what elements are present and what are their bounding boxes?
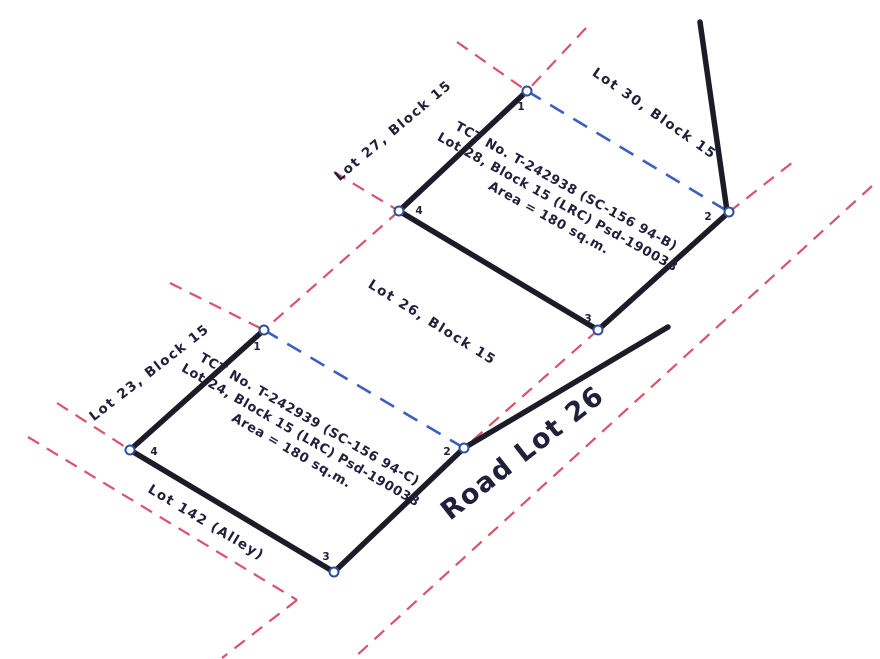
lower-corner-2-marker [460, 444, 469, 453]
lower-corner-1-number: 1 [253, 341, 260, 353]
upper-corner-1-number: 1 [517, 101, 524, 113]
boundary-right-of-road [355, 186, 872, 657]
upper-corner-3-number: 3 [584, 313, 591, 325]
upper-parcel-tct-block: TCT No. T-242938 (SC-156 94-B) Lot 28, B… [426, 114, 689, 291]
road-edge-line-top [700, 22, 727, 211]
label-lot30: Lot 30, Block 15 [589, 65, 719, 163]
upper-corner-2-marker [725, 208, 734, 217]
lower-tct-line-2: Lot 24, Block 15 (LRC) Psd-190038 [179, 361, 422, 510]
boundary-lot27-lot30-left [457, 42, 527, 91]
lower-corner-3-number: 3 [322, 551, 329, 563]
survey-diagram: Lot 27, Block 15 Lot 30, Block 15 Lot 26… [0, 0, 880, 659]
label-lot27: Lot 27, Block 15 [332, 77, 456, 184]
lower-corner-3-marker [330, 568, 339, 577]
upper-corner-1-marker [523, 87, 532, 96]
boundary-lot23-upper [170, 283, 264, 330]
labels-layer: Lot 27, Block 15 Lot 30, Block 15 Lot 26… [86, 65, 719, 564]
boundary-lot30-upper-right [527, 28, 586, 91]
boundary-alley-corner [222, 600, 297, 658]
lower-corner-1-marker [260, 326, 269, 335]
boundary-corner2-upper-ext [729, 162, 793, 212]
label-lot26: Lot 26, Block 15 [365, 277, 499, 369]
boundary-lot26-west [264, 211, 399, 330]
upper-corner-4-marker [395, 207, 404, 216]
lower-corner-4-marker [126, 446, 135, 455]
survey-plan-canvas: Lot 27, Block 15 Lot 30, Block 15 Lot 26… [0, 0, 880, 659]
upper-corner-3-marker [594, 326, 603, 335]
boundary-alley-south [28, 437, 297, 600]
lower-corner-4-number: 4 [150, 446, 157, 458]
lower-corner-2-number: 2 [443, 446, 450, 458]
lower-parcel-edge-4-3 [130, 450, 334, 572]
upper-corner-4-number: 4 [415, 205, 422, 217]
upper-corner-2-number: 2 [704, 211, 711, 223]
